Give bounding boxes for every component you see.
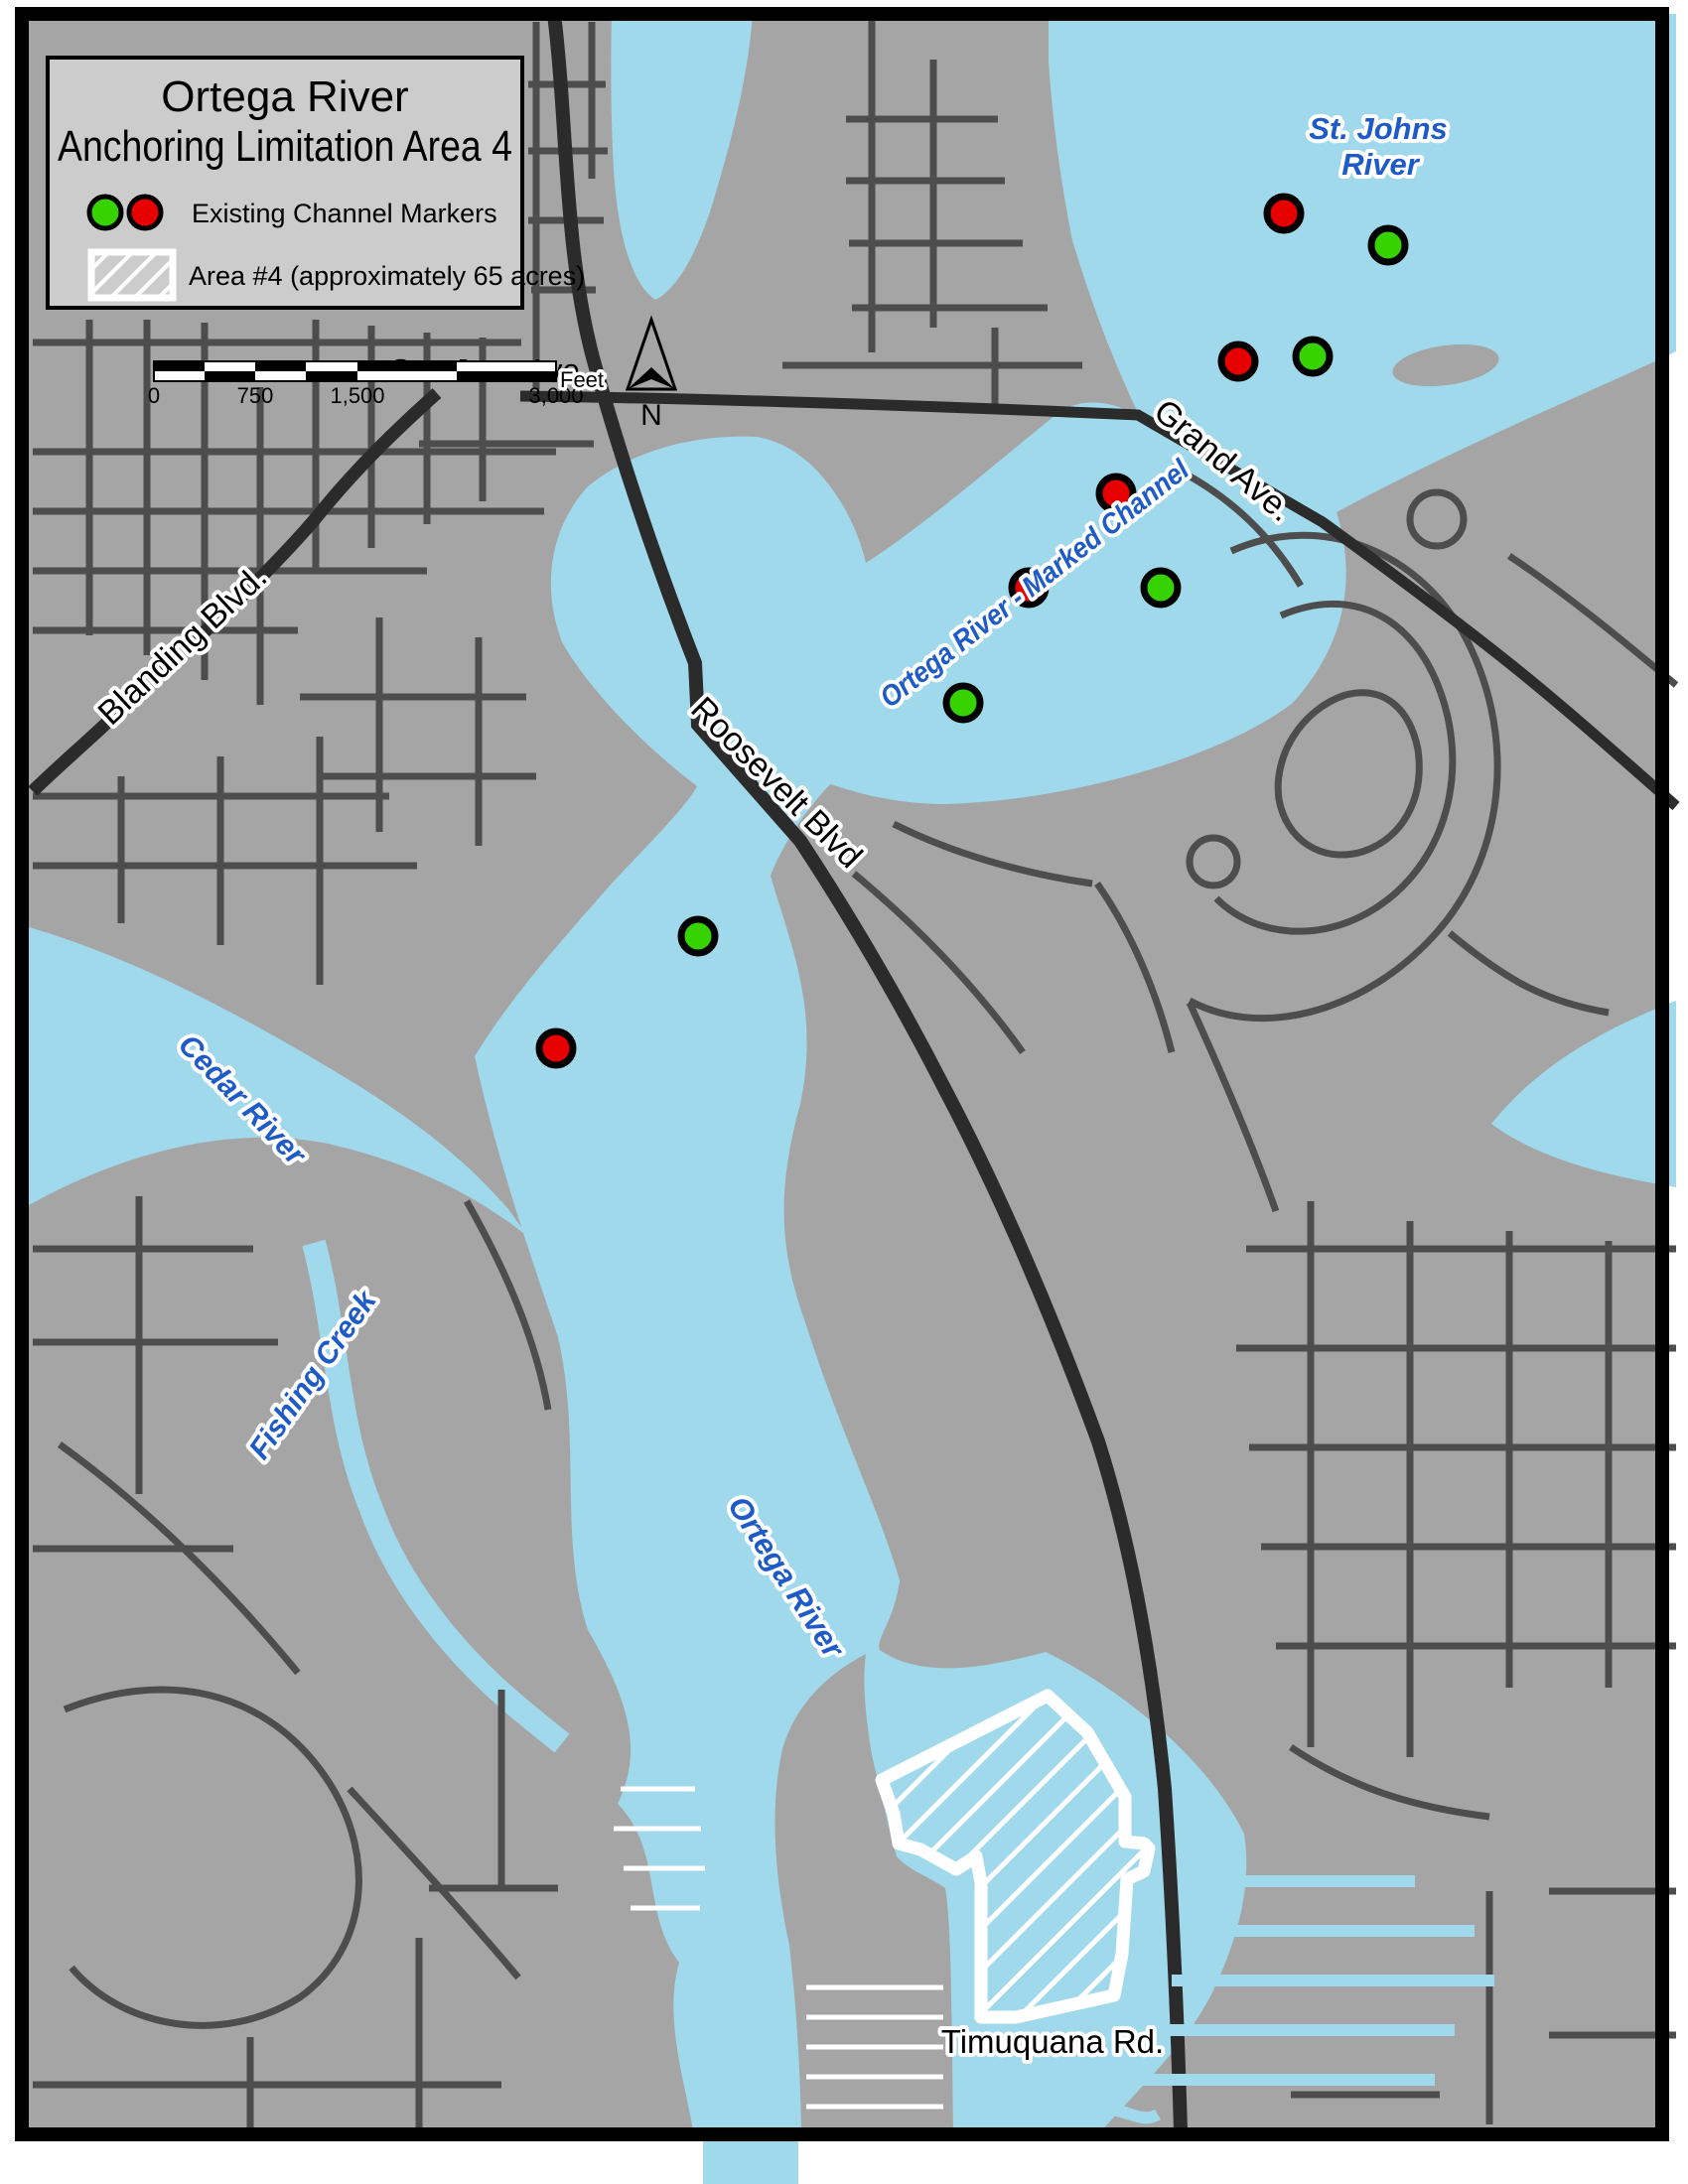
legend-label-area4: Area #4 (approximately 65 acres) — [189, 261, 585, 291]
red-marker-icon — [129, 197, 161, 228]
green-marker-icon — [89, 197, 121, 228]
channel-marker — [681, 919, 715, 953]
channel-marker — [1267, 197, 1301, 230]
channel-marker — [1296, 340, 1330, 373]
legend-label-markers: Existing Channel Markers — [192, 199, 497, 228]
ortega-river-map: St. Johns River Ortega River - Marked Ch… — [0, 0, 1688, 2184]
map-title-line2: Anchoring Limitation Area 4 — [58, 122, 512, 171]
st-johns-river-label: St. Johns — [1309, 111, 1448, 146]
map-title-line1: Ortega River — [161, 72, 408, 121]
hatched-area-icon — [91, 252, 173, 298]
water-pond — [722, 547, 740, 577]
title-panel: Ortega River Anchoring Limitation Area 4… — [48, 58, 585, 308]
map-page: St. Johns River Ortega River - Marked Ch… — [0, 0, 1688, 2184]
channel-marker — [946, 686, 980, 720]
scale-tick-0: 0 — [148, 383, 160, 408]
timuquana-rd-label: Timuquana Rd. — [941, 2023, 1164, 2060]
channel-marker — [539, 1031, 573, 1065]
legend-item-channel-markers: Existing Channel Markers — [89, 197, 497, 228]
north-label: N — [640, 399, 662, 432]
channel-marker — [1221, 344, 1255, 378]
channel-marker — [1371, 228, 1405, 262]
scale-tick-1500: 1,500 — [330, 383, 384, 408]
st-johns-river-label: River — [1341, 147, 1420, 182]
scale-unit-label: Feet — [560, 367, 604, 392]
channel-marker — [1144, 571, 1178, 605]
scale-tick-750: 750 — [237, 383, 274, 408]
